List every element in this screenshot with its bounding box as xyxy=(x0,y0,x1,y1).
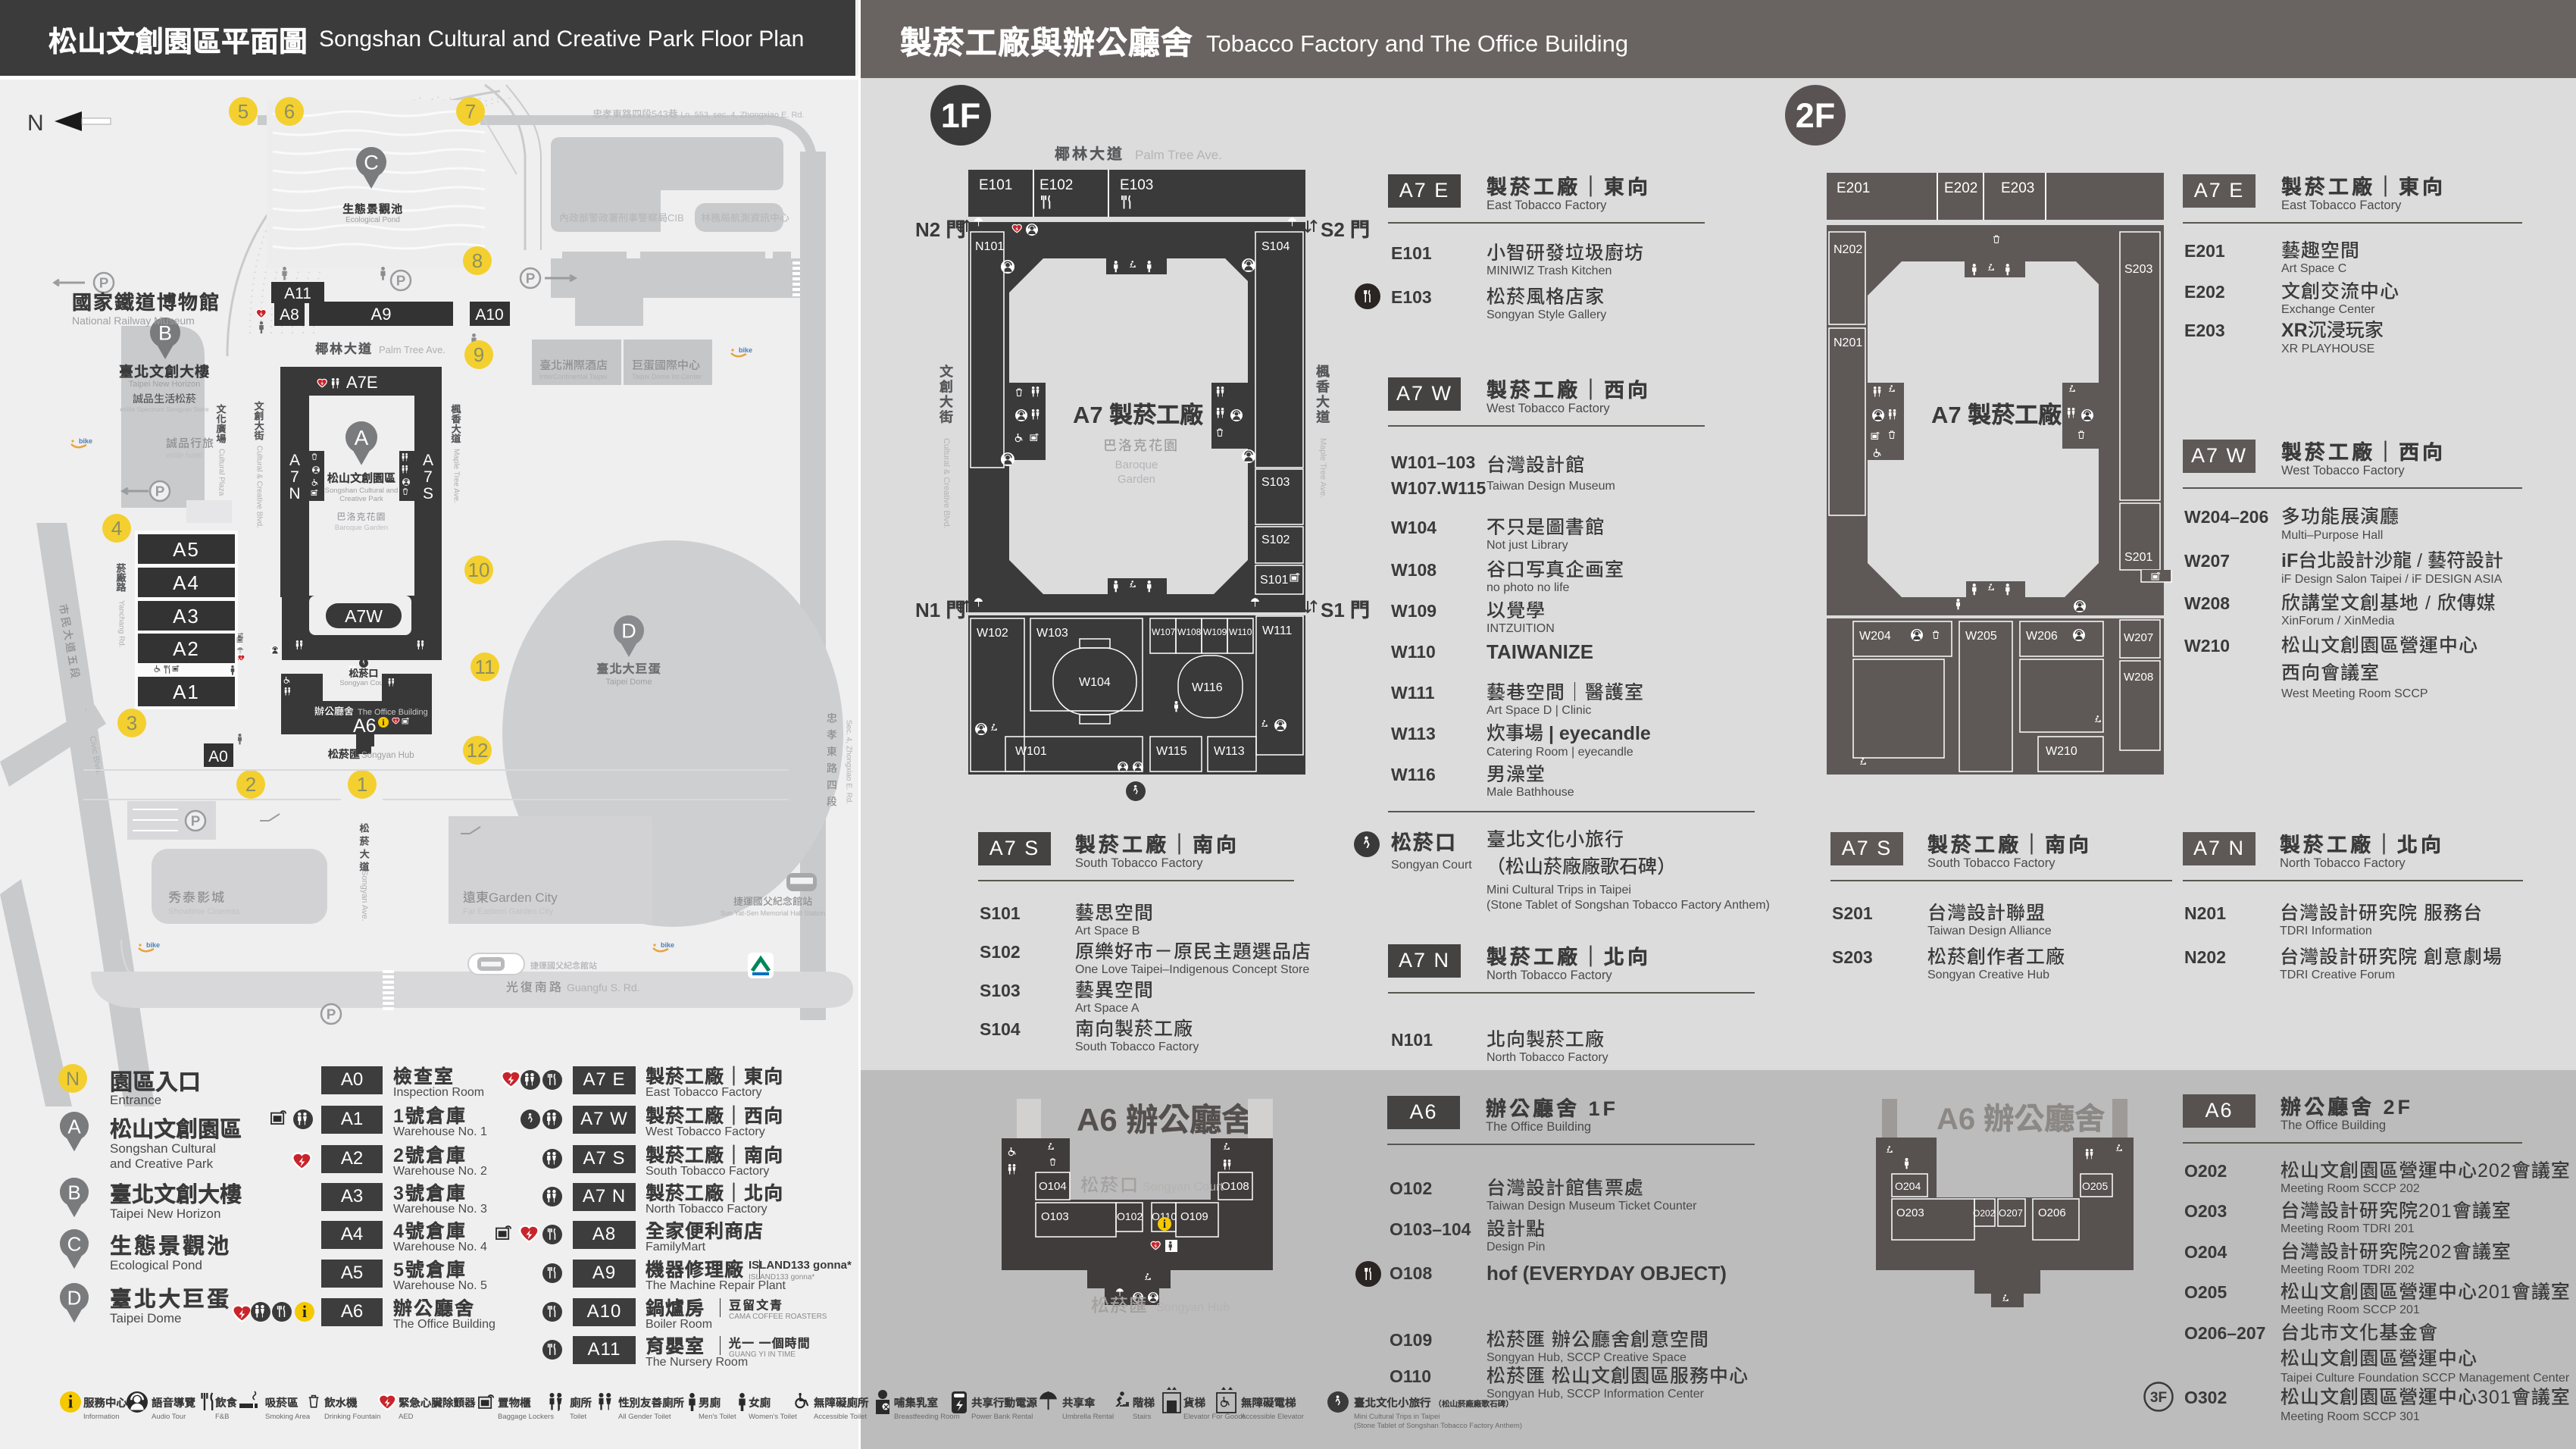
svg-text:bike: bike xyxy=(146,941,160,949)
svg-text:W108: W108 xyxy=(1177,627,1202,637)
svg-text:Baroque: Baroque xyxy=(1115,458,1158,471)
svg-text:臺北洲際酒店: 臺北洲際酒店 xyxy=(539,357,608,373)
svg-text:松山文創園區: 松山文創園區 xyxy=(327,470,395,486)
svg-text:E201: E201 xyxy=(1837,180,1870,196)
svg-text:服務中心: 服務中心 xyxy=(83,1394,127,1410)
svg-text:內政部警政署刑事警察局CIB: 內政部警政署刑事警察局CIB xyxy=(559,210,684,224)
svg-text:2: 2 xyxy=(245,773,256,796)
svg-text:松菸匯: 松菸匯 xyxy=(328,746,360,762)
svg-text:O103: O103 xyxy=(1041,1210,1069,1223)
svg-text:S101: S101 xyxy=(1260,574,1288,587)
svg-text:N101: N101 xyxy=(975,240,1004,253)
svg-text:松菸大道: 松菸大道 xyxy=(358,822,372,874)
svg-text:秀泰影城: 秀泰影城 xyxy=(168,887,226,906)
svg-text:A3: A3 xyxy=(173,605,200,627)
svg-text:i: i xyxy=(302,1302,307,1321)
svg-text:A: A xyxy=(289,452,300,469)
svg-text:O203: O203 xyxy=(1896,1206,1924,1219)
svg-text:bike: bike xyxy=(739,346,752,354)
svg-text:A11: A11 xyxy=(284,285,311,302)
svg-text:National Railway Museum: National Railway Museum xyxy=(72,315,195,327)
svg-text:S2 門: S2 門 xyxy=(1321,214,1370,243)
svg-text:置物櫃: 置物櫃 xyxy=(498,1394,531,1410)
svg-text:W110: W110 xyxy=(1229,627,1252,637)
svg-text:W115: W115 xyxy=(1156,745,1187,758)
svg-text:E101: E101 xyxy=(979,177,1012,193)
svg-text:Accessible Elevator: Accessible Elevator xyxy=(1241,1413,1304,1421)
svg-text:光復南路: 光復南路 xyxy=(506,977,564,995)
svg-text:階梯: 階梯 xyxy=(1133,1394,1155,1410)
svg-text:10: 10 xyxy=(468,559,490,581)
svg-text:InterContinental Taipei: InterContinental Taipei xyxy=(539,373,607,380)
svg-text:臺北文化小旅行 （松山菸廠廠歌石碑）: 臺北文化小旅行 （松山菸廠廠歌石碑） xyxy=(1354,1394,1514,1410)
svg-text:W107: W107 xyxy=(1152,627,1176,637)
svg-text:Songyan Court: Songyan Court xyxy=(339,679,388,687)
svg-text:bike: bike xyxy=(661,941,674,949)
svg-text:W206: W206 xyxy=(2026,630,2058,643)
svg-text:5: 5 xyxy=(238,100,249,123)
svg-text:8: 8 xyxy=(472,249,483,272)
svg-text:Songyan Hub: Songyan Hub xyxy=(361,751,414,760)
svg-text:Creative Park: Creative Park xyxy=(339,495,383,503)
svg-text:文創大街: 文創大街 xyxy=(936,364,956,424)
svg-text:Accessible Toilet: Accessible Toilet xyxy=(814,1413,867,1421)
svg-text:O104: O104 xyxy=(1039,1180,1067,1193)
svg-text:楓香大道: 楓香大道 xyxy=(1313,364,1333,424)
svg-text:(Stone Tablet of Songshan Toba: (Stone Tablet of Songshan Tobacco Factor… xyxy=(1354,1422,1522,1430)
svg-text:A7 製菸工廠: A7 製菸工廠 xyxy=(1073,396,1204,430)
svg-text:E102: E102 xyxy=(1039,177,1073,193)
svg-text:E203: E203 xyxy=(2001,180,2034,196)
svg-text:廁所: 廁所 xyxy=(569,1394,592,1410)
svg-text:W102: W102 xyxy=(977,627,1008,640)
svg-text:7: 7 xyxy=(290,468,299,486)
svg-text:松菸口: 松菸口 xyxy=(1080,1170,1140,1197)
svg-text:Showtime Cinemas: Showtime Cinemas xyxy=(168,907,240,916)
svg-text:貨梯: 貨梯 xyxy=(1183,1394,1205,1410)
svg-text:Yanchang Rd.: Yanchang Rd. xyxy=(117,600,126,648)
svg-text:辦公廳舍: 辦公廳舍 xyxy=(314,703,354,718)
svg-text:AED: AED xyxy=(399,1413,414,1421)
svg-text:Baroque Garden: Baroque Garden xyxy=(335,524,388,532)
svg-text:N2 門: N2 門 xyxy=(915,214,965,243)
svg-text:男廁: 男廁 xyxy=(698,1394,721,1410)
svg-text:楓香大道: 楓香大道 xyxy=(449,403,464,443)
svg-text:松菸匯: 松菸匯 xyxy=(1091,1291,1148,1317)
svg-text:O204: O204 xyxy=(1895,1180,1921,1192)
svg-text:i: i xyxy=(68,1393,73,1413)
svg-text:A7W: A7W xyxy=(345,606,383,626)
svg-text:12: 12 xyxy=(467,739,489,762)
svg-text:eslite Spectrum Songyan Store: eslite Spectrum Songyan Store xyxy=(120,405,208,413)
svg-text:椰林大道: 椰林大道 xyxy=(1054,142,1124,164)
svg-text:C: C xyxy=(364,152,379,174)
svg-text:巴洛克花園: 巴洛克花園 xyxy=(336,510,386,523)
svg-text:文創大街: 文創大街 xyxy=(252,400,267,440)
svg-text:N: N xyxy=(27,111,44,136)
svg-text:D: D xyxy=(621,620,636,643)
svg-text:飲水機: 飲水機 xyxy=(324,1394,358,1410)
svg-text:Cultural & Creative Blvd.: Cultural & Creative Blvd. xyxy=(942,438,951,529)
svg-text:W104: W104 xyxy=(1079,676,1111,689)
svg-text:Sec. 4, Zhongxiao E. Rd.: Sec. 4, Zhongxiao E. Rd. xyxy=(845,720,853,804)
svg-text:Maple Tree Ave.: Maple Tree Ave. xyxy=(1318,438,1327,498)
svg-text:Drinking Fountain: Drinking Fountain xyxy=(324,1413,380,1421)
svg-text:無障礙廁所: 無障礙廁所 xyxy=(814,1394,869,1410)
svg-text:Palm Tree Ave.: Palm Tree Ave. xyxy=(379,344,445,355)
svg-text:S: S xyxy=(423,485,433,502)
svg-text:林務局航測資訊中心: 林務局航測資訊中心 xyxy=(701,210,789,224)
svg-text:11: 11 xyxy=(475,656,496,678)
svg-text:9: 9 xyxy=(474,343,484,366)
svg-text:Palm Tree Ave.: Palm Tree Ave. xyxy=(1135,148,1222,162)
svg-text:N1 門: N1 門 xyxy=(915,595,965,623)
svg-text:S104: S104 xyxy=(1261,240,1290,253)
svg-text:A9: A9 xyxy=(371,305,392,324)
svg-text:3: 3 xyxy=(127,712,137,734)
svg-text:松菸口: 松菸口 xyxy=(348,665,378,680)
svg-text:無障礙電梯: 無障礙電梯 xyxy=(1241,1394,1296,1410)
svg-text:Far Eastern Garden City: Far Eastern Garden City xyxy=(463,907,554,916)
svg-text:P: P xyxy=(327,1006,336,1022)
svg-text:S103: S103 xyxy=(1261,476,1290,489)
svg-text:Maple Tree Ave.: Maple Tree Ave. xyxy=(452,449,461,503)
svg-text:Cultural & Creative Blvd.: Cultural & Creative Blvd. xyxy=(255,446,264,528)
svg-text:E103: E103 xyxy=(1120,177,1153,193)
svg-text:Mini Cultural Trips in Taipei: Mini Cultural Trips in Taipei xyxy=(1354,1413,1440,1421)
svg-text:Men's Toilet: Men's Toilet xyxy=(699,1413,736,1421)
svg-text:A6 辦公廳舍: A6 辦公廳舍 xyxy=(1937,1094,2106,1138)
svg-text:A6 辦公廳舍: A6 辦公廳舍 xyxy=(1077,1094,1254,1141)
svg-text:Songshan Cultural and: Songshan Cultural and xyxy=(325,487,399,495)
svg-text:7: 7 xyxy=(465,100,476,123)
svg-text:椰林大道: 椰林大道 xyxy=(315,338,373,357)
svg-text:A0: A0 xyxy=(208,748,228,765)
svg-text:P: P xyxy=(526,271,536,286)
svg-text:A1: A1 xyxy=(173,681,200,703)
svg-text:O206: O206 xyxy=(2038,1206,2066,1219)
svg-text:Smoking Area: Smoking Area xyxy=(265,1413,311,1421)
svg-text:W101: W101 xyxy=(1015,745,1047,758)
svg-text:A5: A5 xyxy=(173,538,200,561)
svg-text:Sun Yat-Sen Memorial Hall Stat: Sun Yat-Sen Memorial Hall Station xyxy=(721,909,825,917)
svg-text:巨蛋國際中心: 巨蛋國際中心 xyxy=(632,357,700,373)
svg-text:Toilet: Toilet xyxy=(570,1413,587,1421)
svg-text:W204: W204 xyxy=(1859,630,1891,643)
svg-text:捷運國父紀念館站: 捷運國父紀念館站 xyxy=(530,959,597,972)
svg-text:O108: O108 xyxy=(1221,1180,1249,1193)
svg-text:O202: O202 xyxy=(1973,1208,1996,1219)
svg-text:飲食: 飲食 xyxy=(214,1394,238,1410)
svg-text:臺北文創大樓: 臺北文創大樓 xyxy=(119,361,210,381)
svg-text:O102: O102 xyxy=(1117,1210,1143,1222)
svg-text:Songyan Hub: Songyan Hub xyxy=(1156,1301,1230,1314)
svg-text:共享傘: 共享傘 xyxy=(1062,1394,1096,1410)
svg-text:A8: A8 xyxy=(280,306,299,324)
svg-text:O207: O207 xyxy=(1999,1207,2023,1219)
svg-text:Taipei Dome Int Center: Taipei Dome Int Center xyxy=(632,373,702,380)
svg-text:S201: S201 xyxy=(2124,551,2152,564)
svg-text:Taipei New Horizon: Taipei New Horizon xyxy=(129,380,201,389)
svg-text:W116: W116 xyxy=(1192,681,1223,694)
svg-text:Audio Tour: Audio Tour xyxy=(152,1413,186,1421)
svg-text:A6: A6 xyxy=(353,715,377,737)
svg-text:誠品行旅: 誠品行旅 xyxy=(166,435,214,451)
svg-text:Women's Toilet: Women's Toilet xyxy=(749,1413,797,1421)
svg-text:巴洛克花園: 巴洛克花園 xyxy=(1103,435,1179,455)
svg-text:A10: A10 xyxy=(475,306,503,324)
svg-text:Taipei Dome: Taipei Dome xyxy=(605,678,652,687)
svg-text:E202: E202 xyxy=(1944,180,1977,196)
svg-text:性別友善廁所: 性別友善廁所 xyxy=(618,1394,684,1410)
svg-text:A2: A2 xyxy=(173,637,200,660)
svg-text:國家鐵道博物館: 國家鐵道博物館 xyxy=(72,287,220,315)
svg-text:臺北大巨蛋: 臺北大巨蛋 xyxy=(596,659,661,677)
svg-text:4: 4 xyxy=(111,517,122,540)
svg-text:Umbrella Rental: Umbrella Rental xyxy=(1062,1413,1114,1421)
svg-text:A: A xyxy=(423,452,433,469)
svg-text:共享行動電源: 共享行動電源 xyxy=(971,1394,1037,1410)
svg-text:P: P xyxy=(396,273,406,289)
svg-text:A7 製菸工廠: A7 製菸工廠 xyxy=(1931,396,2062,430)
svg-text:Songyan Court: Songyan Court xyxy=(1143,1181,1224,1194)
svg-text:N: N xyxy=(289,485,300,502)
svg-text:捷運國父紀念館站: 捷運國父紀念館站 xyxy=(733,893,812,908)
svg-text:生態景觀池: 生態景觀池 xyxy=(342,201,403,217)
svg-text:Breastfeeding Room: Breastfeeding Room xyxy=(894,1413,960,1421)
svg-text:Information: Information xyxy=(83,1413,120,1421)
svg-text:N202: N202 xyxy=(1834,243,1862,256)
svg-text:1F: 1F xyxy=(941,96,981,135)
svg-text:A: A xyxy=(355,426,369,449)
svg-text:W207: W207 xyxy=(2124,631,2153,644)
svg-text:Baggage Lockers: Baggage Lockers xyxy=(498,1413,554,1421)
svg-text:P: P xyxy=(191,813,201,829)
svg-text:bike: bike xyxy=(79,437,92,445)
svg-text:語音導覽: 語音導覽 xyxy=(152,1394,195,1410)
svg-text:7: 7 xyxy=(424,468,433,486)
svg-text:Guangfu S. Rd.: Guangfu S. Rd. xyxy=(567,981,640,994)
svg-text:吸菸區: 吸菸區 xyxy=(265,1394,299,1410)
svg-text:S102: S102 xyxy=(1261,534,1290,546)
svg-text:緊急心臟除顫器: 緊急心臟除顫器 xyxy=(399,1394,476,1410)
svg-text:W109: W109 xyxy=(1203,627,1227,637)
svg-text:菸廠路: 菸廠路 xyxy=(114,562,129,592)
svg-text:文化廣場: 文化廣場 xyxy=(214,403,229,444)
svg-text:Ecological Pond: Ecological Pond xyxy=(345,216,400,224)
svg-text:S1 門: S1 門 xyxy=(1321,595,1370,623)
svg-text:Elevator For Goods: Elevator For Goods xyxy=(1183,1413,1246,1421)
svg-text:哺集乳室: 哺集乳室 xyxy=(894,1394,938,1410)
svg-text:誠品生活松菸: 誠品生活松菸 xyxy=(133,391,196,406)
svg-text:W205: W205 xyxy=(1965,630,1997,643)
svg-text:A7E: A7E xyxy=(346,373,378,392)
svg-text:O109: O109 xyxy=(1180,1210,1208,1223)
svg-text:W210: W210 xyxy=(2046,745,2077,758)
svg-text:W103: W103 xyxy=(1036,627,1068,640)
svg-text:P: P xyxy=(155,484,165,499)
svg-text:Power Bank Rental: Power Bank Rental xyxy=(971,1413,1033,1421)
svg-text:Songyan Ave.: Songyan Ave. xyxy=(360,870,369,922)
svg-text:2F: 2F xyxy=(1796,96,1836,135)
svg-text:6: 6 xyxy=(284,100,295,123)
svg-text:忠孝東路四段: 忠孝東路四段 xyxy=(824,712,839,812)
svg-text:A4: A4 xyxy=(173,571,200,594)
svg-text:Stairs: Stairs xyxy=(1133,1413,1152,1421)
svg-text:All Gender Toilet: All Gender Toilet xyxy=(618,1413,671,1421)
svg-text:S203: S203 xyxy=(2124,263,2152,276)
svg-text:Garden: Garden xyxy=(1118,473,1155,486)
svg-text:忠孝東路四段543巷 Ln. 553, sec. 4, Zh: 忠孝東路四段543巷 Ln. 553, sec. 4, Zhongxiao E.… xyxy=(592,106,805,120)
svg-text:O205: O205 xyxy=(2082,1180,2108,1192)
svg-text:女廁: 女廁 xyxy=(749,1394,771,1410)
svg-text:eslite hotel: eslite hotel xyxy=(166,452,202,460)
svg-text:1: 1 xyxy=(357,773,367,796)
svg-text:W111: W111 xyxy=(1262,624,1293,637)
svg-text:F&B: F&B xyxy=(215,1413,229,1421)
svg-text:W113: W113 xyxy=(1214,745,1245,758)
svg-text:Cultural Plaza: Cultural Plaza xyxy=(217,449,226,496)
svg-text:N201: N201 xyxy=(1834,336,1862,349)
svg-text:W208: W208 xyxy=(2124,671,2153,684)
